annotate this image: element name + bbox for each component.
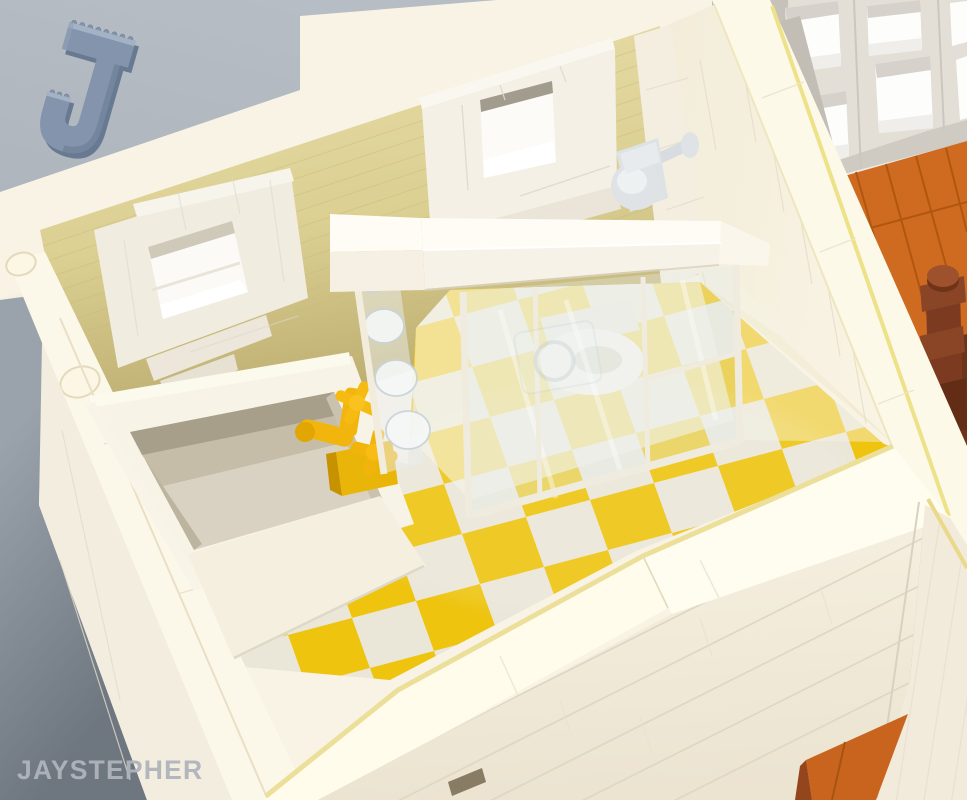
svg-text:JAYSTEPHER: JAYSTEPHER [17,755,203,785]
